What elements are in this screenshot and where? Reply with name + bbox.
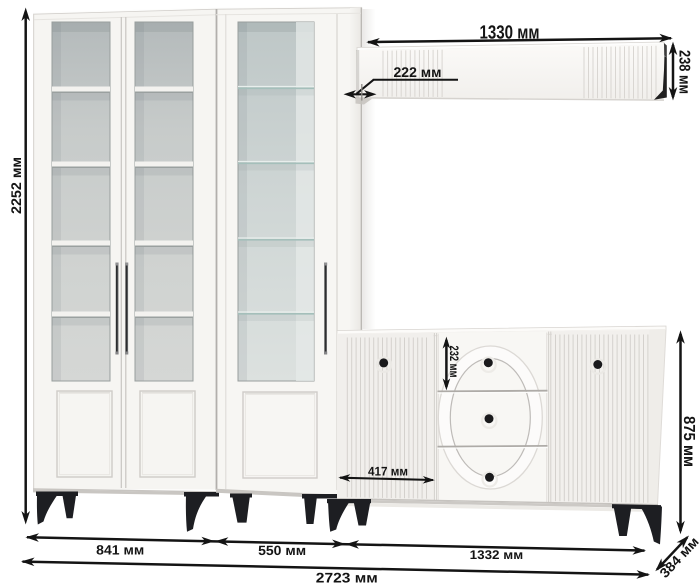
- svg-text:232 мм: 232 мм: [447, 346, 461, 378]
- svg-text:238 мм: 238 мм: [676, 50, 693, 94]
- svg-text:550 мм: 550 мм: [258, 543, 306, 558]
- svg-text:384 мм: 384 мм: [657, 534, 700, 581]
- svg-text:417 мм: 417 мм: [368, 464, 408, 478]
- svg-text:222 мм: 222 мм: [394, 64, 442, 80]
- svg-text:841 мм: 841 мм: [96, 542, 144, 557]
- svg-text:875 мм: 875 мм: [680, 416, 697, 467]
- svg-text:2252 мм: 2252 мм: [8, 157, 24, 214]
- svg-text:1332 мм: 1332 мм: [470, 548, 524, 562]
- svg-text:1330 мм: 1330 мм: [480, 22, 540, 43]
- svg-text:2723 мм: 2723 мм: [316, 570, 378, 586]
